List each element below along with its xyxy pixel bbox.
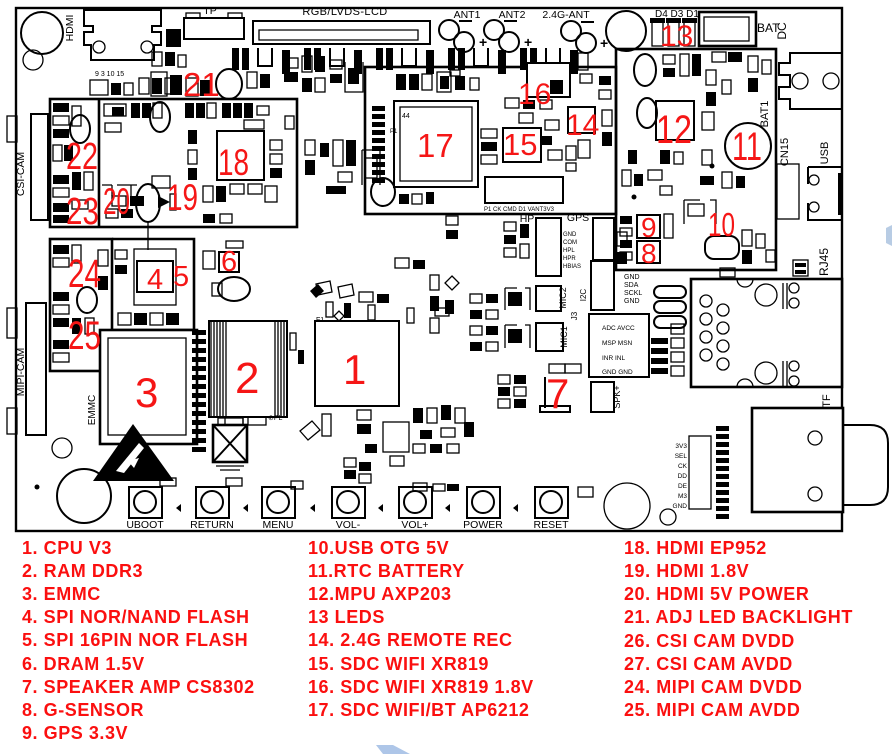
svg-text:5. SPI 16PIN NOR FLASH: 5. SPI 16PIN NOR FLASH xyxy=(22,630,248,650)
svg-text:RJ45: RJ45 xyxy=(817,248,831,276)
svg-text:SPK+: SPK+ xyxy=(612,385,622,408)
svg-text:HPR: HPR xyxy=(563,256,576,262)
svg-text:17. SDC WIFI/BT AP6212: 17. SDC WIFI/BT AP6212 xyxy=(308,700,530,720)
svg-text:11: 11 xyxy=(732,125,762,169)
svg-text:GPS: GPS xyxy=(567,212,589,224)
svg-text:TF: TF xyxy=(821,394,833,408)
svg-text:2.4G-ANT: 2.4G-ANT xyxy=(542,9,590,21)
svg-text:BAT1: BAT1 xyxy=(759,101,771,128)
svg-text:M3: M3 xyxy=(678,493,687,500)
svg-text:MSP MSN: MSP MSN xyxy=(602,340,633,347)
svg-text:⊘PL: ⊘PL xyxy=(268,415,283,422)
svg-text:10.USB OTG 5V: 10.USB OTG 5V xyxy=(308,538,449,558)
svg-text:SDA: SDA xyxy=(624,282,639,289)
svg-text:UBOOT: UBOOT xyxy=(126,519,164,531)
svg-text:3. EMMC: 3. EMMC xyxy=(22,584,101,604)
svg-text:HPL: HPL xyxy=(563,248,575,254)
svg-text:21. ADJ LED BACKLIGHT: 21. ADJ LED BACKLIGHT xyxy=(624,607,853,627)
svg-text:16: 16 xyxy=(518,78,551,111)
svg-text:1. CPU V3: 1. CPU V3 xyxy=(22,538,112,558)
svg-text:RETURN: RETURN xyxy=(190,519,234,531)
svg-text:25: 25 xyxy=(68,314,101,358)
svg-text:GND: GND xyxy=(624,274,640,281)
svg-text:CN15: CN15 xyxy=(779,138,791,166)
svg-text:J3: J3 xyxy=(570,311,579,320)
svg-text:SEL: SEL xyxy=(675,453,688,460)
svg-text:HBIAS: HBIAS xyxy=(563,264,581,270)
svg-text:25. MIPI CAM AVDD: 25. MIPI CAM AVDD xyxy=(624,700,800,720)
svg-text:9 3 10 15: 9 3 10 15 xyxy=(95,71,124,78)
svg-text:MIC2: MIC2 xyxy=(558,287,568,309)
svg-text:12.MPU AXP203: 12.MPU AXP203 xyxy=(308,584,452,604)
svg-text:DC: DC xyxy=(775,22,789,40)
svg-text:14: 14 xyxy=(566,109,599,142)
svg-text:2. RAM DDR3: 2. RAM DDR3 xyxy=(22,561,143,581)
svg-text:10: 10 xyxy=(708,206,735,243)
svg-text:14. 2.4G REMOTE REC: 14. 2.4G REMOTE REC xyxy=(308,630,513,650)
svg-text:F1: F1 xyxy=(316,317,324,324)
svg-text:3: 3 xyxy=(135,369,158,416)
svg-text:22: 22 xyxy=(66,136,98,178)
svg-text:DE: DE xyxy=(678,483,688,490)
svg-text:8: 8 xyxy=(641,238,657,269)
svg-text:18: 18 xyxy=(218,142,249,183)
svg-text:I2C: I2C xyxy=(579,289,588,302)
svg-text:27. CSI CAM AVDD: 27. CSI CAM AVDD xyxy=(624,654,793,674)
svg-text:HDMI: HDMI xyxy=(64,15,76,42)
svg-text:13: 13 xyxy=(660,20,693,53)
svg-text:RGB/LVDS-LCD: RGB/LVDS-LCD xyxy=(302,6,387,18)
svg-text:MIC1: MIC1 xyxy=(559,326,569,348)
svg-text:ANT2: ANT2 xyxy=(499,9,526,21)
svg-text:CSI-CAM: CSI-CAM xyxy=(15,152,27,196)
svg-text:RESET: RESET xyxy=(533,519,569,531)
svg-text:SCKL: SCKL xyxy=(624,290,642,297)
svg-text:18. HDMI EP952: 18. HDMI EP952 xyxy=(624,538,767,558)
svg-text:26. CSI CAM DVDD: 26. CSI CAM DVDD xyxy=(624,631,795,651)
svg-text:11.RTC BATTERY: 11.RTC BATTERY xyxy=(308,561,465,581)
svg-text:VOL+: VOL+ xyxy=(401,519,428,531)
svg-text:9. GPS 3.3V: 9. GPS 3.3V xyxy=(22,723,128,743)
svg-text:EMMC: EMMC xyxy=(87,395,98,426)
svg-text:P1 CK CMD D1 VANT3V3: P1 CK CMD D1 VANT3V3 xyxy=(484,207,555,213)
svg-text:15: 15 xyxy=(503,127,537,162)
svg-text:MENU: MENU xyxy=(263,519,294,531)
svg-text:DD: DD xyxy=(678,473,688,480)
svg-text:23: 23 xyxy=(66,191,99,233)
svg-text:24. MIPI CAM DVDD: 24. MIPI CAM DVDD xyxy=(624,677,802,697)
svg-text:ANT1: ANT1 xyxy=(454,9,481,21)
svg-text:GND GND: GND GND xyxy=(602,369,633,376)
svg-text:+: + xyxy=(524,34,532,50)
svg-text:13 LEDS: 13 LEDS xyxy=(308,607,385,627)
svg-text:6. DRAM 1.5V: 6. DRAM 1.5V xyxy=(22,654,145,674)
svg-text:6: 6 xyxy=(221,246,237,278)
svg-text:4. SPI NOR/NAND FLASH: 4. SPI NOR/NAND FLASH xyxy=(22,607,250,627)
svg-text:12: 12 xyxy=(656,108,692,152)
svg-text:USB: USB xyxy=(819,142,831,165)
svg-text:TP: TP xyxy=(203,5,216,17)
svg-text:7. SPEAKER AMP CS8302: 7. SPEAKER AMP CS8302 xyxy=(22,677,255,697)
svg-text:24: 24 xyxy=(68,252,101,296)
svg-text:20: 20 xyxy=(103,181,130,222)
svg-text:19. HDMI 1.8V: 19. HDMI 1.8V xyxy=(624,561,749,581)
svg-text:44: 44 xyxy=(402,113,410,120)
svg-text:ADC AVCC: ADC AVCC xyxy=(602,325,635,332)
svg-text:POWER: POWER xyxy=(463,519,503,531)
svg-text:21: 21 xyxy=(183,66,220,103)
svg-text:HP: HP xyxy=(520,213,535,225)
svg-text:CK: CK xyxy=(678,463,688,470)
svg-text:5: 5 xyxy=(173,261,189,293)
svg-text:7: 7 xyxy=(546,370,569,417)
svg-text:20. HDMI 5V POWER: 20. HDMI 5V POWER xyxy=(624,584,809,604)
svg-text:15. SDC WIFI XR819: 15. SDC WIFI XR819 xyxy=(308,654,489,674)
svg-text:1: 1 xyxy=(343,346,366,393)
svg-text:3V3: 3V3 xyxy=(675,443,687,450)
svg-text:8. G-SENSOR: 8. G-SENSOR xyxy=(22,700,144,720)
svg-text:INR INL: INR INL xyxy=(602,355,626,362)
svg-text:19: 19 xyxy=(167,177,198,218)
svg-text:GND: GND xyxy=(563,232,577,238)
svg-text:GND: GND xyxy=(624,298,640,305)
svg-text:VOL-: VOL- xyxy=(336,519,361,531)
svg-text:COM: COM xyxy=(563,240,577,246)
svg-text:16. SDC WIFI XR819 1.8V: 16. SDC WIFI XR819 1.8V xyxy=(308,677,534,697)
svg-text:GND: GND xyxy=(673,503,688,510)
svg-text:P1: P1 xyxy=(390,129,398,135)
svg-text:4: 4 xyxy=(147,264,163,296)
svg-text:2: 2 xyxy=(235,354,259,403)
svg-text:17: 17 xyxy=(417,127,454,164)
